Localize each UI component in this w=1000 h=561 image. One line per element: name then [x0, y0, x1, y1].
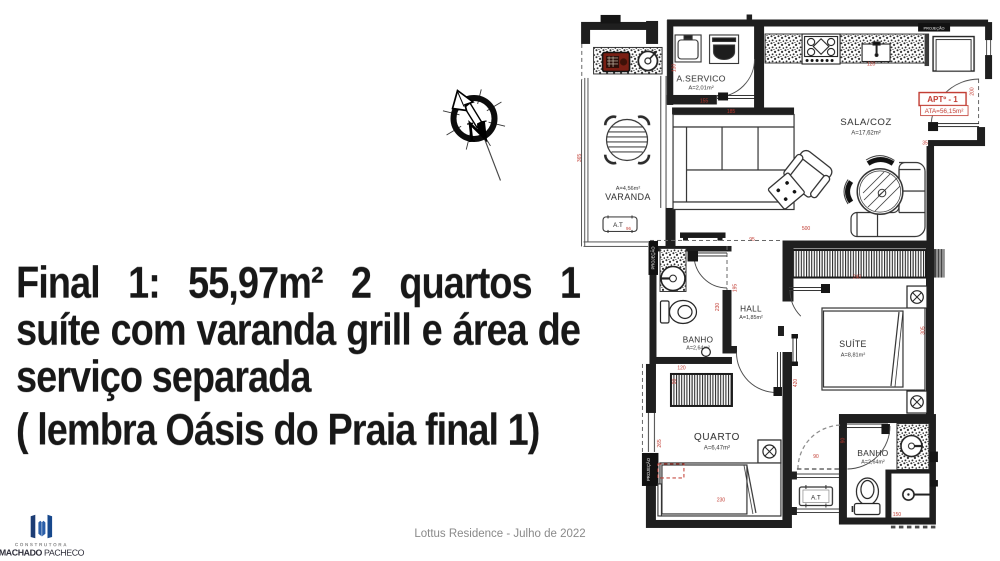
svg-text:365: 365 — [577, 154, 583, 163]
svg-text:A=8,81m²: A=8,81m² — [841, 353, 866, 359]
svg-text:230: 230 — [717, 497, 726, 503]
svg-text:PROJEÇÃO: PROJEÇÃO — [924, 25, 945, 30]
svg-text:MACHADO PACHECO: MACHADO PACHECO — [0, 548, 85, 558]
svg-text:VARANDA: VARANDA — [605, 192, 651, 202]
svg-text:A.T: A.T — [811, 495, 821, 502]
svg-text:195: 195 — [732, 284, 738, 293]
svg-text:APTº - 1: APTº - 1 — [927, 95, 958, 104]
svg-text:A=2,64m²: A=2,64m² — [861, 460, 885, 466]
svg-text:A=6,47m²: A=6,47m² — [704, 445, 730, 451]
svg-text:SALA/COZ: SALA/COZ — [840, 117, 891, 128]
svg-text:120: 120 — [677, 365, 686, 371]
svg-text:200: 200 — [970, 87, 976, 96]
svg-text:265: 265 — [657, 439, 663, 448]
svg-text:BANHO: BANHO — [683, 335, 714, 344]
svg-text:A=17,62m²: A=17,62m² — [851, 131, 881, 137]
svg-text:90: 90 — [672, 378, 678, 384]
svg-text:150: 150 — [893, 512, 902, 518]
svg-text:90: 90 — [813, 454, 819, 460]
svg-text:500: 500 — [802, 226, 811, 232]
svg-text:SUÍTE: SUÍTE — [839, 339, 866, 349]
svg-text:BANHO: BANHO — [857, 448, 888, 458]
svg-text:ATA=56,15m²: ATA=56,15m² — [925, 108, 964, 115]
svg-text:QUARTO: QUARTO — [694, 432, 740, 443]
svg-text:120: 120 — [867, 62, 876, 68]
svg-text:155: 155 — [700, 98, 709, 104]
svg-text:CONSTRUTORA: CONSTRUTORA — [15, 542, 68, 547]
svg-text:A=1,85m²: A=1,85m² — [739, 315, 763, 321]
svg-text:230: 230 — [715, 303, 721, 312]
svg-text:PROJEÇÃO: PROJEÇÃO — [646, 457, 651, 481]
svg-text:A.T: A.T — [613, 222, 623, 229]
svg-text:130: 130 — [672, 64, 678, 73]
svg-text:35: 35 — [922, 141, 928, 147]
svg-text:240: 240 — [853, 275, 862, 281]
svg-text:PROJEÇÃO: PROJEÇÃO — [651, 246, 656, 270]
svg-text:HALL: HALL — [740, 304, 762, 313]
svg-text:305: 305 — [920, 326, 926, 335]
svg-text:A.SERVICO: A.SERVICO — [676, 73, 725, 83]
svg-text:420: 420 — [793, 379, 799, 388]
svg-text:90: 90 — [840, 438, 846, 444]
svg-text:96: 96 — [626, 226, 631, 231]
svg-text:A=2,01m²: A=2,01m² — [688, 85, 713, 91]
